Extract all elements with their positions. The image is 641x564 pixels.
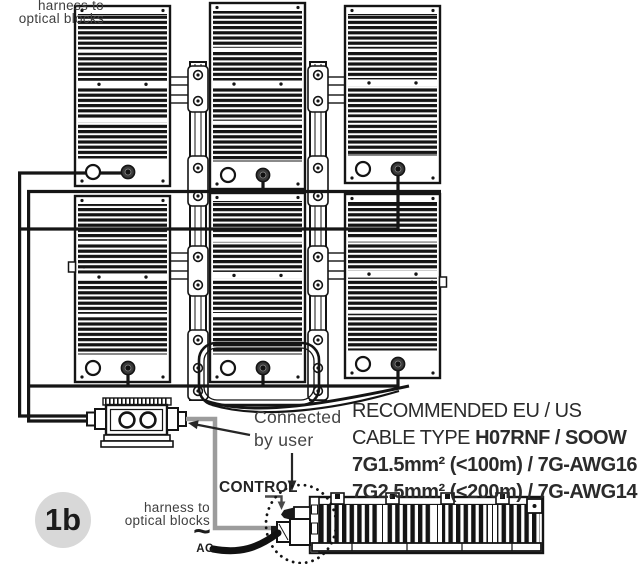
label-line: by user bbox=[254, 429, 341, 452]
cable-gland bbox=[167, 408, 178, 430]
led-panel bbox=[210, 193, 305, 382]
cable-gland bbox=[95, 409, 106, 429]
label-ac: AC bbox=[193, 543, 217, 555]
note-line-3: 7G1.5mm² (<100m) / 7G-AWG16 bbox=[352, 452, 637, 479]
panel-port bbox=[356, 357, 370, 371]
note-line-3-bold: 7G1.5mm² (<100m) / 7G-AWG16 bbox=[352, 454, 637, 476]
panel-port bbox=[86, 165, 100, 179]
label-line: optical blocks bbox=[0, 13, 104, 26]
note-line-2-prefix: CABLE TYPE bbox=[352, 427, 475, 449]
junction-box bbox=[87, 398, 186, 447]
driver-heatsink-fins bbox=[319, 505, 540, 543]
led-panel-array bbox=[20, 3, 441, 421]
junction-box-port bbox=[120, 413, 135, 428]
led-panel bbox=[345, 6, 440, 183]
label-control: CONTROL bbox=[219, 479, 298, 497]
panel-port bbox=[221, 361, 235, 375]
note-line-4: 7G2.5mm² (<200m) / 7G-AWG14 bbox=[352, 479, 637, 506]
arrow-to-junction-box bbox=[196, 425, 250, 436]
led-panel bbox=[210, 3, 305, 189]
panel-port bbox=[221, 168, 235, 182]
junction-box-port bbox=[141, 413, 156, 428]
led-panel bbox=[75, 6, 170, 186]
wiring-diagram-figure: harness to optical blocks Connected by u… bbox=[0, 0, 641, 564]
panel-port bbox=[356, 162, 370, 176]
note-line-2: CABLE TYPE H07RNF / SOOW bbox=[352, 425, 637, 452]
label-harness-to-optical-blocks-left: harness to optical blocks bbox=[0, 0, 104, 26]
ac-sine-symbol: ~ bbox=[189, 519, 215, 545]
ac-mains-cable bbox=[213, 533, 278, 551]
note-line-2-bold: H07RNF / SOOW bbox=[475, 427, 626, 449]
panel-port bbox=[86, 361, 100, 375]
cable-recommendation-note: RECOMMENDED EU / US CABLE TYPE H07RNF / … bbox=[352, 398, 637, 506]
note-line-1: RECOMMENDED EU / US bbox=[352, 398, 637, 425]
label-connected-by-user: Connected by user bbox=[254, 406, 341, 451]
step-badge-1b: 1b bbox=[35, 492, 91, 548]
note-line-4-bold: 7G2.5mm² (<200m) / 7G-AWG14 bbox=[352, 481, 637, 503]
label-line: Connected bbox=[254, 406, 341, 429]
led-panel bbox=[345, 194, 440, 378]
led-panel bbox=[75, 196, 170, 382]
